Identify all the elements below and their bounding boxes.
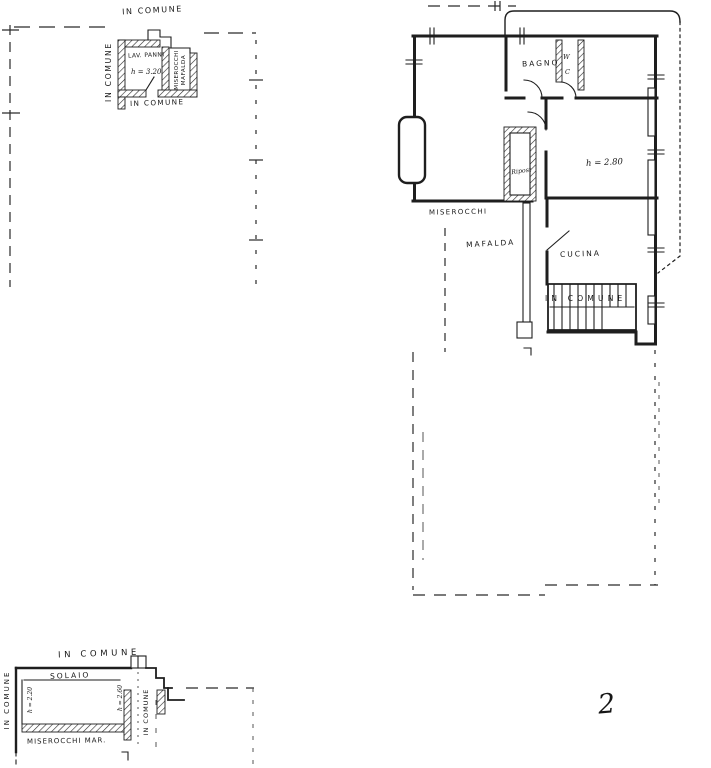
label-lav-panni: LAV. PANNI [128,51,165,59]
stair-treads-lower [554,308,602,329]
label-in-comune-left: IN COMUNE [104,42,113,102]
small-mark [122,752,128,760]
plan-lower-left: IN COMUNE IN COMUNE SOLAIO h = 2.20 h = … [3,648,254,766]
label-bagno: BAGNO [522,58,560,68]
label-in-comune-left-c: IN COMUNE [3,671,11,730]
label-height-2-60-vertical: h = 2.60 [117,685,124,711]
label-height-3-20: h = 3.20 [131,68,162,76]
label-height-2-20-vertical: h = 2.20 [27,687,34,713]
label-in-comune-bottom: IN COMUNE [130,97,185,108]
plan-main: BAGNO W C h = 2.80 Ripost MISEROCCHI MAF… [399,1,680,595]
boundary-dashed-lines [2,25,263,287]
staircase [548,284,636,330]
plan-upper-left: IN COMUNE IN COMUNE LAV. PANNI h = 3.20 … [2,4,263,287]
attic-right-wall [124,690,131,740]
pilaster [648,296,655,324]
label-in-comune-top-c: IN COMUNE [58,648,140,661]
terrace-parapet [523,203,530,331]
label-owner-miserocchi-vertical: MISEROCCHI [174,50,180,90]
label-in-comune-right-vertical: IN COMUNE [142,689,150,736]
entry-jamb [157,690,165,714]
page-number: 2 [596,688,617,720]
door-arc [524,80,542,98]
label-in-comune-top: IN COMUNE [122,4,183,16]
pilaster [648,88,655,136]
label-solaio: SOLAIO [50,670,91,680]
label-height-2-80: h = 2.80 [586,157,624,169]
label-owner-mafalda-vertical: MAFALDA [181,55,187,86]
label-miserocchi: MISEROCCHI [429,208,488,217]
label-stairs-in-comune: IN COMUNE [545,294,626,303]
label-cucina: CUCINA [560,249,601,259]
floor-plan-drawing: IN COMUNE IN COMUNE LAV. PANNI h = 3.20 … [0,0,711,768]
cadastral-floor-plan-sheet: IN COMUNE IN COMUNE LAV. PANNI h = 3.20 … [0,0,711,768]
parapet-foot [517,322,532,338]
label-mafalda: MAFALDA [466,238,516,250]
ripost-closet [504,127,536,201]
solaio-walls [16,656,184,766]
top-survey-dashes [428,1,516,11]
solaio-dashed-lines [138,672,254,766]
wc-side-wall [578,40,584,90]
door-swing-line [146,77,154,90]
thick-attic-wall [22,724,128,732]
small-mark [524,348,531,355]
label-wc-w: W [563,53,571,61]
door-swing-line [547,231,569,250]
door-arc [560,82,576,98]
garden-dashed-boundary [413,228,659,595]
bay-window [399,117,425,183]
label-miserocchi-mar: MISEROCCHI MAR. [27,736,106,745]
label-wc-c: C [565,68,570,76]
